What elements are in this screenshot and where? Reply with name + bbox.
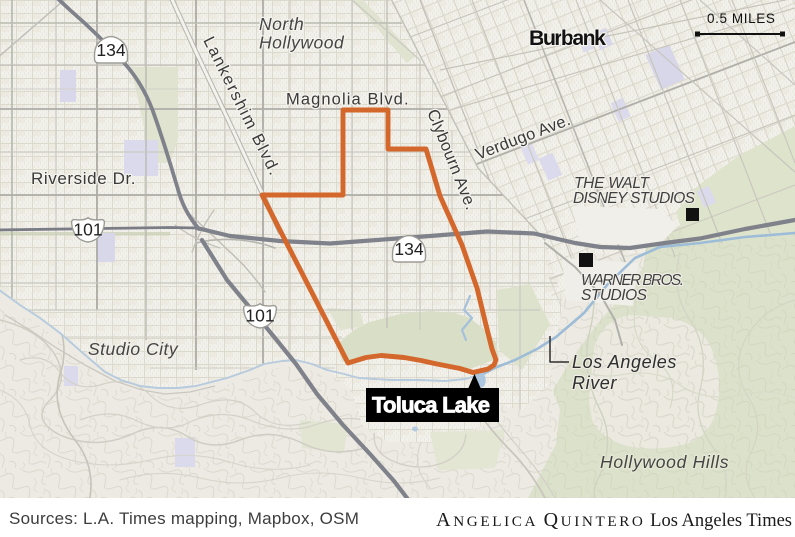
svg-text:101: 101: [245, 306, 274, 326]
svg-text:DISNEY STUDIOS: DISNEY STUDIOS: [573, 190, 696, 207]
svg-text:Hollywood: Hollywood: [259, 33, 345, 53]
svg-text:Studio City: Studio City: [88, 339, 179, 359]
svg-text:134: 134: [394, 239, 423, 259]
svg-text:STUDIOS: STUDIOS: [581, 287, 648, 304]
svg-text:Burbank: Burbank: [529, 26, 606, 50]
svg-text:Magnolia Blvd.: Magnolia Blvd.: [286, 91, 410, 109]
svg-text:Toluca Lake: Toluca Lake: [372, 393, 490, 418]
svg-text:Sources: L.A. Times mapping, M: Sources: L.A. Times mapping, Mapbox, OSM: [9, 509, 359, 528]
svg-text:ANGELICA QUINTERO Los Angeles: ANGELICA QUINTERO Los Angeles Times: [436, 509, 792, 531]
svg-text:134: 134: [96, 40, 125, 60]
svg-text:Hollywood Hills: Hollywood Hills: [600, 452, 729, 472]
svg-text:101: 101: [73, 220, 102, 240]
svg-text:Riverside Dr.: Riverside Dr.: [31, 169, 136, 188]
svg-text:Los Angeles: Los Angeles: [572, 352, 677, 372]
svg-text:River: River: [572, 373, 617, 393]
svg-text:North: North: [259, 14, 304, 34]
svg-text:0.5 MILES: 0.5 MILES: [707, 11, 775, 26]
